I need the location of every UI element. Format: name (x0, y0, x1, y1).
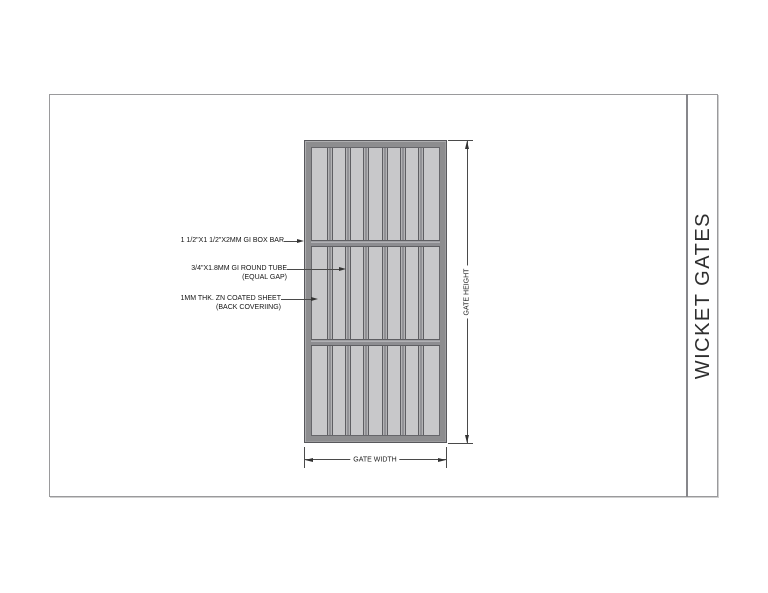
dimension-arrow-left-icon (305, 458, 313, 462)
gate-back-sheet (311, 147, 440, 436)
round-tube (363, 148, 369, 435)
dimension-arrow-up-icon (465, 141, 469, 149)
annotation-coated-sheet: 1MM THK. ZN COATED SHEET (BACK COVERIING… (181, 294, 281, 312)
gate-width-label: GATE WIDTH (350, 457, 399, 464)
round-tube (400, 148, 406, 435)
annotation-text: 3/4"X1.8MM GI ROUND TUBE (191, 264, 287, 273)
annotation-text: (EQUAL GAP) (191, 273, 287, 282)
round-tube (418, 148, 424, 435)
annotation-round-tube: 3/4"X1.8MM GI ROUND TUBE (EQUAL GAP) (191, 264, 287, 282)
round-tube (327, 148, 333, 435)
horizontal-box-bar (311, 339, 440, 346)
annotation-text: 1MM THK. ZN COATED SHEET (181, 294, 281, 303)
gate-height-label: GATE HEIGHT (464, 266, 471, 319)
round-tube (345, 148, 351, 435)
round-tube (382, 148, 388, 435)
leader-arrow-icon (311, 297, 318, 301)
extension-line (448, 443, 473, 444)
dimension-arrow-right-icon (438, 458, 446, 462)
annotation-box-bar: 1 1/2"X1 1/2"X2MM GI BOX BAR (181, 236, 284, 245)
annotation-text: 1 1/2"X1 1/2"X2MM GI BOX BAR (181, 236, 284, 245)
gate-frame (304, 140, 447, 443)
title-block: WICKET GATES (688, 94, 718, 497)
extension-line (448, 140, 473, 141)
leader-arrow-icon (297, 239, 304, 243)
leader-arrow-icon (339, 267, 346, 271)
leader-line (287, 269, 339, 270)
horizontal-box-bar (311, 240, 440, 247)
leader-line (281, 299, 311, 300)
extension-line (446, 447, 447, 468)
leader-line (284, 241, 298, 242)
drawing-title: WICKET GATES (692, 212, 715, 379)
dimension-arrow-down-icon (465, 435, 469, 443)
annotation-text: (BACK COVERIING) (181, 303, 281, 312)
